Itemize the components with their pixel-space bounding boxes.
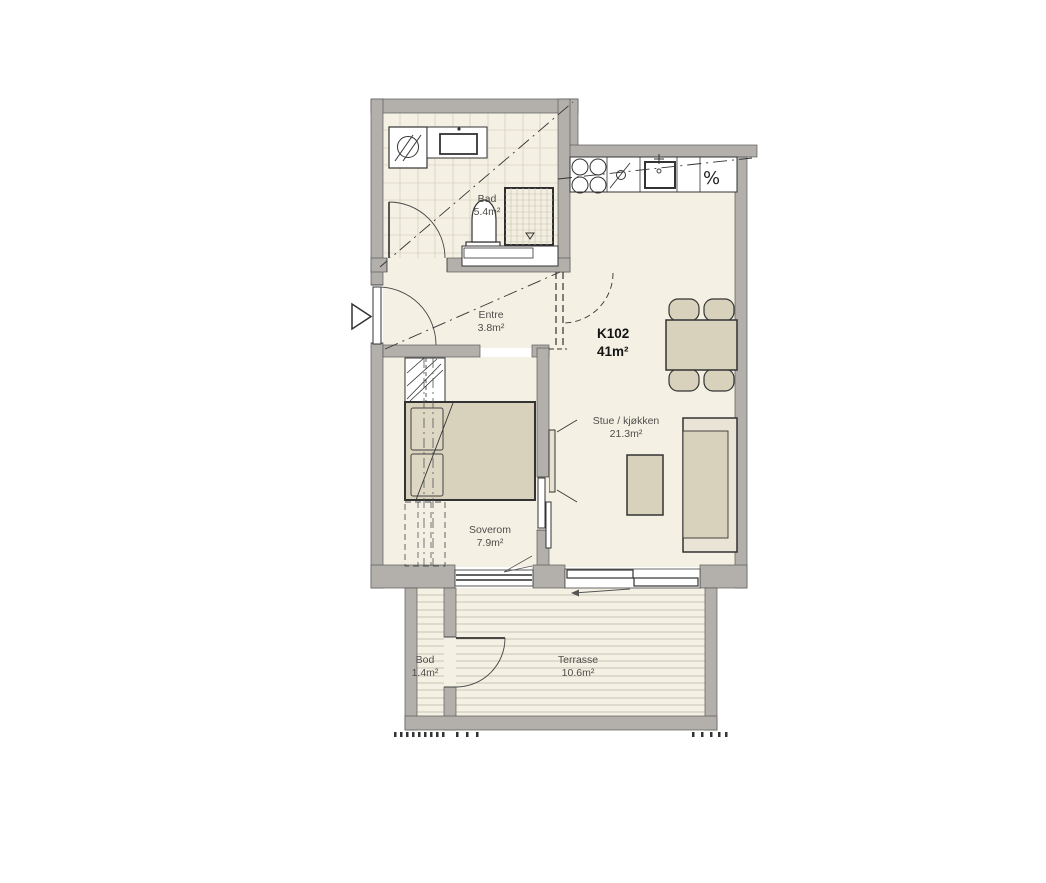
room-area: 1.4m² [412,667,439,680]
room-label-bod: Bod 1.4m² [412,654,439,679]
chair [669,299,699,321]
dining-table [666,320,737,370]
room-label-stue-kjokken: Stue / kjøkken 21.3m² [593,415,660,440]
unit-id: K102 [597,325,629,343]
room-area: 5.4m² [474,206,501,219]
room-name: Stue / kjøkken [593,415,660,428]
room-area: 3.8m² [478,322,505,335]
room-label-terrasse: Terrasse 10.6m² [558,654,598,679]
room-name: Terrasse [558,654,598,667]
room-area: 21.3m² [610,428,643,441]
room-label-bad: Bad 5.4m² [474,193,501,218]
room-name: Bod [416,654,435,667]
washing-machine-icon [389,127,427,168]
chair [669,369,699,391]
floorplan-canvas: % [0,0,1046,883]
coffee-table [627,455,663,515]
room-label-entre: Entre 3.8m² [478,309,505,334]
chair [704,299,734,321]
pillow [411,454,443,496]
wardrobe [405,358,445,402]
room-name: Bad [478,193,497,206]
pillow [411,408,443,450]
room-label-soverom: Soverom 7.9m² [469,524,511,549]
sofa [683,418,737,552]
bed [405,402,535,500]
room-area: 7.9m² [477,537,504,550]
railing-ticks [394,732,728,737]
room-area: 10.6m² [562,667,595,680]
floorplan-drawing: % [0,0,1046,883]
unit-label: K102 41m² [597,325,629,360]
room-name: Entre [478,309,503,322]
unit-area: 41m² [597,343,629,361]
entrance-marker-icon [352,304,371,329]
chair [704,369,734,391]
dishwasher-symbol: % [703,168,720,189]
room-name: Soverom [469,524,511,537]
